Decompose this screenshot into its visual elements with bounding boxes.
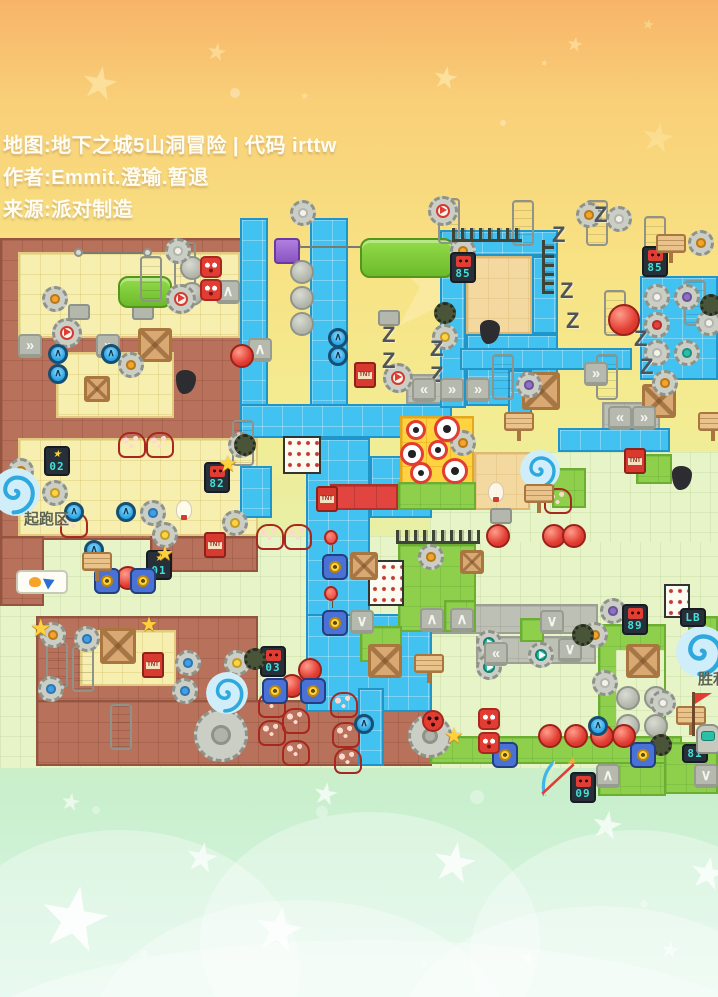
hanging-block [68,304,90,320]
map-info-overlay: 地图:地下之城5山洞冒险 | 代码 irttw 作者:Emmit.澄瑜.暂退 来… [3,130,337,226]
counter-display: LB [680,608,706,627]
conveyor-arrow-block: ∧ [450,608,474,632]
map-source: 来源:派对制造 [3,194,337,226]
thorn-ball [244,648,266,670]
conveyor-arrow-block: » [632,406,656,430]
wooden-sign [524,484,554,514]
stone-ball [616,686,640,710]
tnt-block: TNT [624,448,646,474]
wooden-sign [504,412,534,442]
wooden-crate [368,644,402,678]
apple-enemy [608,304,640,336]
lock-block [322,610,348,636]
bumper-pad: ∧ [48,344,68,364]
eye-enemy [442,458,468,484]
start-direction-sign [16,570,68,594]
eye-enemy [406,420,426,440]
apple-enemy [538,724,562,748]
star-pickup: ★ [140,614,160,634]
balloon [324,586,340,610]
apple-enemy [486,524,510,548]
terrain-grass [398,482,476,510]
ladybug-enemy [422,710,444,732]
mushroom-enemy [282,708,310,734]
wooden-crate [84,376,110,402]
map-title: 地图:地下之城5山洞冒险 | 代码 irttw [3,130,337,162]
mushroom-enemy [282,740,310,766]
tnt-block: TNT [354,362,376,388]
dice-enemy [200,256,222,278]
star-pickup: ★ [444,726,466,748]
thorn-ball [700,294,718,316]
conveyor-arrow-block: » [466,378,490,402]
gear-icon [42,480,68,506]
wooden-sign [698,412,718,442]
spring-icon: Z [566,310,586,334]
gear-icon [175,650,201,676]
robot-checkpoint [696,724,718,754]
conveyor-arrow-block: » [440,378,464,402]
bumper-pad: ∧ [101,344,121,364]
gear-icon [674,340,700,366]
stone-pillar [110,704,132,750]
gear-icon [74,626,100,652]
mushroom-enemy [284,524,312,550]
gear-icon [172,678,198,704]
mushroom-enemy [118,432,146,458]
conveyor-arrow-block: ∧ [596,764,620,788]
bumper-pad: ∧ [588,716,608,736]
stone-ball [290,260,314,284]
eye-enemy [428,440,448,460]
wooden-sign [414,654,444,684]
bumper-pad: ∧ [48,364,68,384]
wooden-crate [138,328,172,362]
screenshot-root: ★★★★★★★★★★★★★★★★★★★★ 858582890309★02★01L… [0,0,718,997]
stone-pillar [72,646,94,692]
bumper-pad: ∧ [328,328,348,348]
hanging-block [490,508,512,524]
spring-icon: Z [430,338,450,362]
spring-icon: Z [552,224,572,248]
zone-label-start: 起跑区 [24,508,69,529]
wooden-crate [350,552,378,580]
gear-icon [644,284,670,310]
bumper-pad: ∧ [354,714,374,734]
large-sawblade-icon [194,708,248,762]
spring-icon: Z [640,356,660,380]
tnt-block: TNT [316,486,338,512]
conveyor-arrow-block: ∨ [540,610,564,634]
conveyor-arrow-block: ∨ [694,764,718,788]
spike-strip-vertical [542,240,554,294]
star-pickup: ★ [156,543,176,563]
green-pipe [360,238,454,278]
gear-icon [650,690,676,716]
spring-icon: Z [594,204,614,228]
gear-icon [222,510,248,536]
apple-enemy [564,724,588,748]
gear-icon [165,238,191,264]
thorn-ball [434,302,456,324]
counter-display: ★02 [44,446,70,476]
conveyor-arrow-block: » [584,362,608,386]
wooden-crate [100,628,136,664]
mushroom-enemy [256,524,284,550]
star-pickup: ★ [218,454,240,476]
terrain-water [558,428,670,452]
spring-icon: Z [560,280,580,304]
spike-strip [452,228,522,242]
spring-icon: Z [634,328,654,352]
apple-enemy [562,524,586,548]
star-pickup: ★ [30,616,54,640]
dice-enemy [478,732,500,754]
wooden-crate [626,644,660,678]
eye-enemy [410,462,432,484]
bumper-pad: ∧ [116,502,136,522]
conveyor-arrow-block: « [484,642,508,666]
terrain-water [240,466,272,518]
gear-icon [674,284,700,310]
conveyor-arrow-block: « [608,406,632,430]
zone-label-victory: 胜利区 [698,668,718,689]
eye-enemy [434,416,460,442]
lock-block [300,678,326,704]
stone-pillar [140,256,162,302]
apple-enemy [230,344,254,368]
terrain-water [240,218,268,406]
light-bulb [176,500,192,520]
light-bulb [488,482,504,502]
gear-icon [42,286,68,312]
conveyor-arrow-block: » [18,334,42,358]
sawblade-icon [428,196,458,226]
lock-block [262,678,288,704]
sawblade-teal-icon [528,642,554,668]
spike-strip [396,530,480,544]
crossbow [538,756,580,800]
stone-ball [290,312,314,336]
tnt-block: TNT [142,652,164,678]
gear-icon [688,230,714,256]
portal-spiral-icon [206,672,248,714]
pulley-rope [78,252,148,254]
gear-icon [118,352,144,378]
sawblade-icon [166,284,196,314]
conveyor-arrow-block: ∨ [350,610,374,634]
mushroom-enemy [146,432,174,458]
stone-pillar [492,354,514,400]
dice-enemy [478,708,500,730]
spring-icon: Z [382,324,402,348]
spring-icon: Z [382,350,402,374]
counter-display: 89 [622,604,648,635]
lock-block [630,742,656,768]
tnt-block: TNT [204,532,226,558]
terrain-redblock [330,484,398,510]
gear-icon [38,676,64,702]
balloon [324,530,340,554]
lock-block [130,568,156,594]
dice-enemy [200,279,222,301]
stone-ball [290,286,314,310]
mushroom-enemy [330,692,358,718]
conveyor-arrow-block: ∧ [420,608,444,632]
gear-icon [418,544,444,570]
bumper-pad: ∧ [328,346,348,366]
conveyor-arrow-block: « [412,378,436,402]
mushroom-enemy [334,748,362,774]
thorn-ball [572,624,594,646]
gear-icon [592,670,618,696]
counter-display: 85 [450,252,476,283]
wooden-sign [656,234,686,264]
map-author: 作者:Emmit.澄瑜.暂退 [3,162,337,194]
wooden-sign [82,552,112,582]
gear-icon [516,372,542,398]
lock-block [322,554,348,580]
wooden-crate [460,550,484,574]
terrain-coil [283,436,321,474]
